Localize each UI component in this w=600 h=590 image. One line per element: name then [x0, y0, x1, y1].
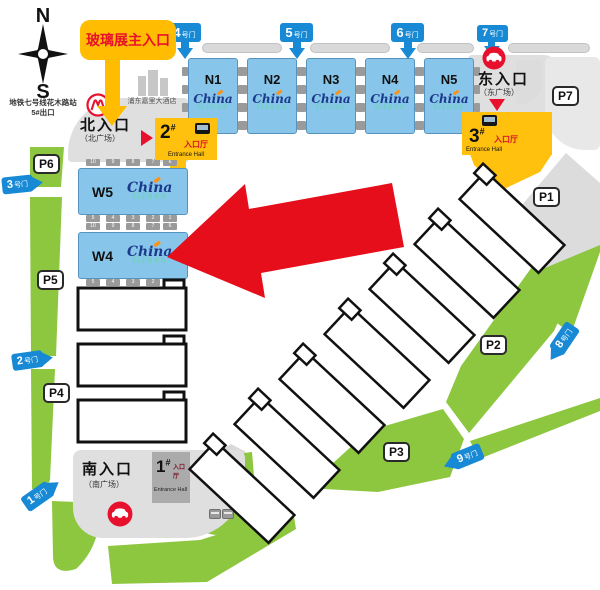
info-screen-icon [482, 115, 497, 126]
hotel-building-icon [148, 70, 158, 96]
east-entrance-title: 东入口 [478, 68, 529, 89]
hall-gate-tab: 1 [163, 215, 177, 222]
hall-label: W5 [92, 184, 113, 200]
gate-6-label: 6号门 [391, 23, 424, 42]
callout-arrow-head [97, 106, 127, 126]
hall-label: N4 [366, 72, 414, 87]
gate-3-label: 3号门 [1, 174, 34, 194]
china-glass-logo: ChinaGlass [127, 245, 172, 266]
hall-gate-tab [300, 103, 306, 112]
gate-suffix: 号门 [294, 30, 308, 40]
gate-5-arrow-head [289, 48, 305, 59]
hall-gate-tab: 8 [126, 223, 140, 230]
compass-south-label: S [36, 81, 49, 98]
hall-gate-tab: 9 [106, 159, 120, 166]
hall-gate-tab [300, 121, 306, 130]
hall-gate-tab: 3 [126, 215, 140, 222]
hall-gate-tab: 6 [163, 159, 177, 166]
hall-gate-tab [418, 67, 424, 76]
entrance-hall-2-box: 2# 入口厅 Entrance Hall [155, 118, 217, 160]
south-entrance-subtitle: （南广场） [84, 479, 124, 490]
hall-gate-tab: 4 [106, 215, 120, 222]
hall-gate-tab: 2 [146, 279, 160, 286]
hall-gate-tab [241, 121, 247, 130]
logo-line2: Glass [127, 256, 172, 266]
gate-number: 7 [482, 25, 488, 42]
hall-w4: W4 ChinaGlass [78, 232, 188, 279]
entrance-hall-en: Entrance Hall [154, 487, 187, 493]
hall-gate-tab [300, 85, 306, 94]
hotel-building-icon [160, 78, 168, 96]
gate-suffix: 号门 [489, 29, 503, 39]
china-glass-logo: ChinaGlass [248, 93, 296, 112]
entrance-hall-3-box: 3# 入口厅 Entrance Hall [462, 112, 552, 155]
shuttle-icon [222, 509, 234, 519]
entrance-hall-number: 3# [469, 127, 485, 146]
east-entrance-subtitle: （东广场） [479, 87, 519, 98]
entrance-hall-cn: 入口厅 [184, 139, 208, 150]
hall-gate-tab: 10 [86, 223, 100, 230]
car-dropoff-icon [107, 501, 133, 527]
china-glass-logo: ChinaGlass [127, 181, 172, 202]
hall-label: N2 [248, 72, 296, 87]
entrance-hall-1-box: 1# 入口厅 Entrance Hall [152, 452, 190, 503]
hall-n2: N2 ChinaGlass [247, 58, 297, 134]
north-entrance-subtitle: （北广场） [80, 133, 120, 144]
hall-gate-tab: 7 [146, 159, 160, 166]
car-dropoff-icon [482, 46, 506, 70]
hall-gate-tab: 4 [106, 279, 120, 286]
hall-gate-tab [241, 85, 247, 94]
east-entrance-pointer [489, 99, 505, 111]
gate-6-arrow-head [400, 48, 416, 59]
walkway-bar [202, 43, 282, 53]
gate-suffix: 号门 [405, 30, 419, 40]
entrance-hall-number: 1# [156, 458, 170, 475]
glass-expo-entrance-callout: 玻璃展主入口 [80, 20, 176, 60]
hall-gate-tab [418, 85, 424, 94]
expo-site-map: N S 地铁七号线花木路站 5#出口 玻璃展主入口 浦东嘉里大酒店 4号门 5号… [0, 0, 600, 590]
gate-number: 3 [6, 177, 14, 195]
hall-gate-tab [359, 67, 365, 76]
gate-suffix: 号门 [23, 355, 38, 367]
hall-gate-tab: 10 [86, 159, 100, 166]
metro-exit-label: 5#出口 [3, 107, 83, 118]
hall-gate-tab [359, 85, 365, 94]
parking-p4: P4 [43, 383, 70, 403]
hotel-name: 浦东嘉里大酒店 [120, 96, 184, 106]
logo-line2: Glass [127, 192, 172, 202]
entrance-hall-en: Entrance Hall [466, 147, 502, 153]
hall-gate-tab: 8 [126, 159, 140, 166]
parking-p7: P7 [552, 86, 579, 106]
gate-5-label: 5号门 [280, 23, 313, 42]
entrance-hall-number: 2# [160, 123, 176, 142]
walkway-bar [417, 43, 474, 53]
walkway-bar [508, 43, 590, 53]
entrance-hall-cn: 入口厅 [173, 462, 190, 480]
parking-p3: P3 [383, 442, 410, 462]
hall-label: N1 [189, 72, 237, 87]
china-glass-logo: ChinaGlass [307, 93, 355, 112]
hall-gate-tab-highlight: 1 [163, 279, 177, 286]
hall-gate-tab: 5 [86, 215, 100, 222]
compass-north-label: N [36, 5, 50, 27]
hotel-building-icon [138, 76, 146, 96]
hall-gate-tab [359, 121, 365, 130]
hall-gate-tab [418, 121, 424, 130]
parking-p2: P2 [480, 335, 507, 355]
hall-label: N5 [425, 72, 473, 87]
hall-gate-tab [241, 103, 247, 112]
hall-gate-tab [418, 103, 424, 112]
info-screen-icon [195, 123, 210, 134]
north-entrance-pointer [141, 130, 153, 146]
hall-gate-tab: 6 [163, 223, 177, 230]
compass-rose: N S [10, 2, 74, 98]
walkway-bar [310, 43, 390, 53]
hall-gate-tab: 9 [106, 223, 120, 230]
entrance-hall-en: Entrance Hall [155, 152, 217, 158]
hall-gate-tab: 3 [126, 279, 140, 286]
hall-w5: W5 ChinaGlass [78, 168, 188, 215]
hall-gate-tab [241, 67, 247, 76]
hall-n4: N4 ChinaGlass [365, 58, 415, 134]
hall-gate-tab [182, 85, 188, 94]
hall-gate-tab [182, 67, 188, 76]
parking-p6: P6 [33, 154, 60, 174]
gate-4-arrow-head [177, 48, 193, 59]
gate-7-label: 7号门 [477, 25, 508, 42]
hall-label: W4 [92, 248, 113, 264]
gate-suffix: 号门 [463, 448, 480, 463]
hall-gate-tab [359, 103, 365, 112]
south-entrance-title: 南入口 [82, 458, 133, 479]
callout-text: 玻璃展主入口 [86, 30, 170, 50]
gate-number: 5 [285, 23, 292, 42]
hall-gate-tab [182, 103, 188, 112]
hall-label: N3 [307, 72, 355, 87]
gate-2-arrow [41, 350, 54, 365]
hall-gate-tab [474, 103, 480, 112]
gate-number: 2 [16, 353, 24, 371]
parking-p5: P5 [37, 270, 64, 290]
gate-suffix: 号门 [14, 179, 29, 190]
gate-suffix: 号门 [182, 30, 196, 40]
hall-gate-tab: 2 [146, 215, 160, 222]
parking-p1: P1 [533, 187, 560, 207]
hall-n3: N3 ChinaGlass [306, 58, 356, 134]
entrance-hall-cn: 入口厅 [494, 134, 518, 145]
china-glass-logo: ChinaGlass [366, 93, 414, 112]
hall-gate-tab [300, 67, 306, 76]
china-glass-logo: ChinaGlass [189, 93, 237, 112]
hall-gate-tab: 5 [86, 279, 100, 286]
shuttle-icon [209, 509, 221, 519]
callout-arrow-shaft [105, 56, 120, 108]
gate-3-arrow [31, 175, 43, 190]
gate-number: 6 [396, 23, 403, 42]
compass-hub [37, 48, 49, 60]
hall-gate-tab: 7 [146, 223, 160, 230]
china-glass-logo: ChinaGlass [425, 93, 473, 112]
